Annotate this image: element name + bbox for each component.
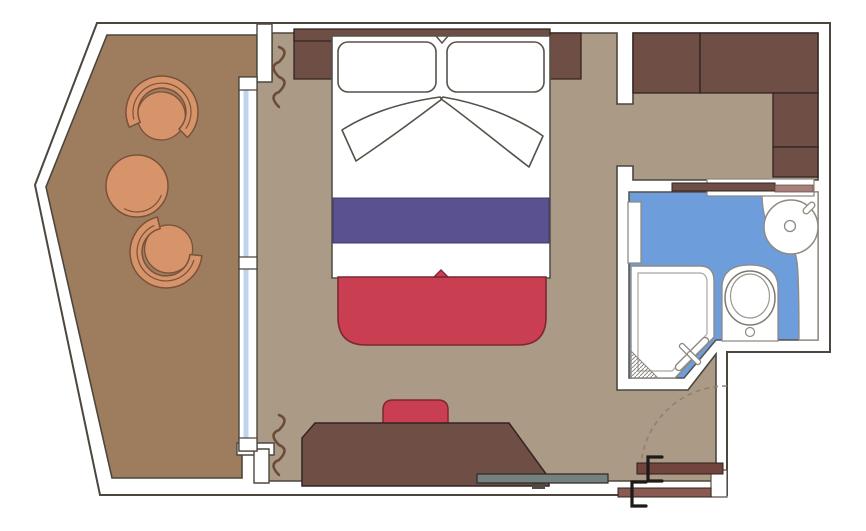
sink-drain [785, 221, 796, 232]
bed-group [294, 29, 581, 278]
nightstand-right [549, 33, 581, 79]
table-top [106, 155, 168, 217]
wardrobe-unit-2 [700, 33, 818, 93]
floor-plan-canvas [0, 0, 866, 531]
desk-chair [383, 400, 448, 426]
wardrobe-unit-3 [773, 93, 818, 147]
wall-shelf [477, 474, 608, 483]
wardrobe-unit-4 [773, 147, 818, 177]
divider-mullion [239, 257, 257, 269]
towel-bar-mauve [775, 185, 813, 192]
divider-cap-bottom [239, 438, 257, 451]
pillow-left [338, 42, 436, 92]
divider-cap-top [239, 77, 257, 90]
floor-plan [0, 0, 866, 531]
bed-bench-group [338, 270, 546, 345]
pillow-right [447, 42, 544, 92]
wall-step-bottom [254, 449, 269, 483]
bathroom-door-leaf [628, 202, 641, 263]
toilet-seat [725, 271, 775, 325]
purple-bed-runner [333, 198, 549, 243]
entry-door-open-leaf [637, 463, 723, 474]
wall-step-top [257, 24, 272, 82]
towel-bar-dark [672, 183, 775, 191]
balcony-glass-divider [239, 77, 257, 451]
red-bench [338, 277, 546, 345]
toilet-flush-button [746, 328, 755, 337]
wardrobe-unit-1 [633, 33, 700, 93]
balcony-table [106, 155, 168, 217]
